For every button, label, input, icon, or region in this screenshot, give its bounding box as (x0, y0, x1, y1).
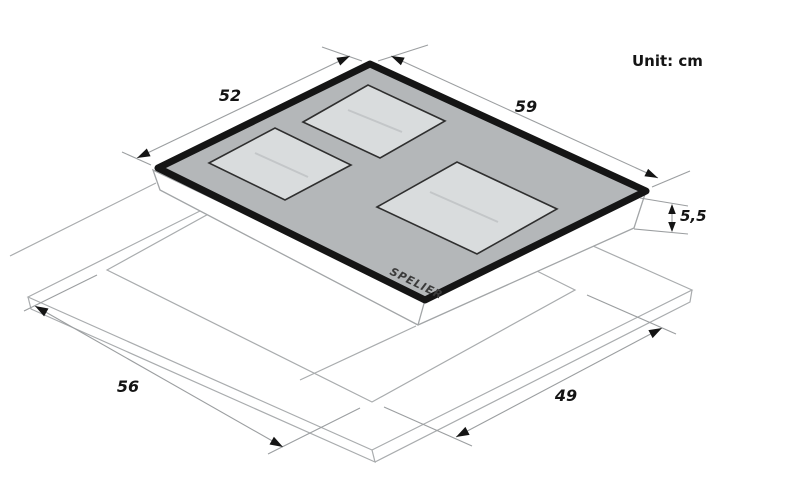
dimension-5-5-label: 5,5 (680, 207, 707, 225)
extension-line (652, 171, 690, 187)
projection-line-front (300, 326, 416, 380)
extension-line (587, 295, 676, 334)
dimension-59-label: 59 (515, 97, 537, 116)
arrowhead-icon (456, 427, 470, 437)
extension-line (384, 407, 472, 446)
arrowhead-icon (668, 204, 676, 214)
unit-note: Unit: cm (632, 52, 703, 70)
extension-line (634, 229, 688, 234)
dimension-line (35, 306, 283, 447)
arrowhead-icon (668, 222, 676, 232)
dimension-hob-height: 5,5 (634, 198, 707, 234)
extension-line (268, 408, 360, 454)
arrowhead-icon (391, 56, 405, 65)
dimension-diagram: 56 49 SPELIER (0, 0, 787, 502)
dimension-52-label: 52 (219, 86, 241, 105)
arrowhead-icon (336, 56, 350, 66)
arrowhead-icon (648, 328, 662, 338)
arrowhead-icon (644, 169, 658, 178)
dimension-cutout-depth: 56 (24, 275, 360, 454)
countertop-thickness-left (28, 297, 375, 462)
dimension-line (456, 328, 662, 437)
projection-line-left (10, 183, 156, 256)
dimension-49-label: 49 (554, 386, 577, 405)
dimension-56-label: 56 (117, 377, 139, 396)
diagram-svg: 56 49 SPELIER (0, 0, 787, 502)
arrowhead-icon (270, 437, 284, 447)
extension-line (640, 198, 688, 206)
arrowhead-icon (137, 149, 151, 159)
